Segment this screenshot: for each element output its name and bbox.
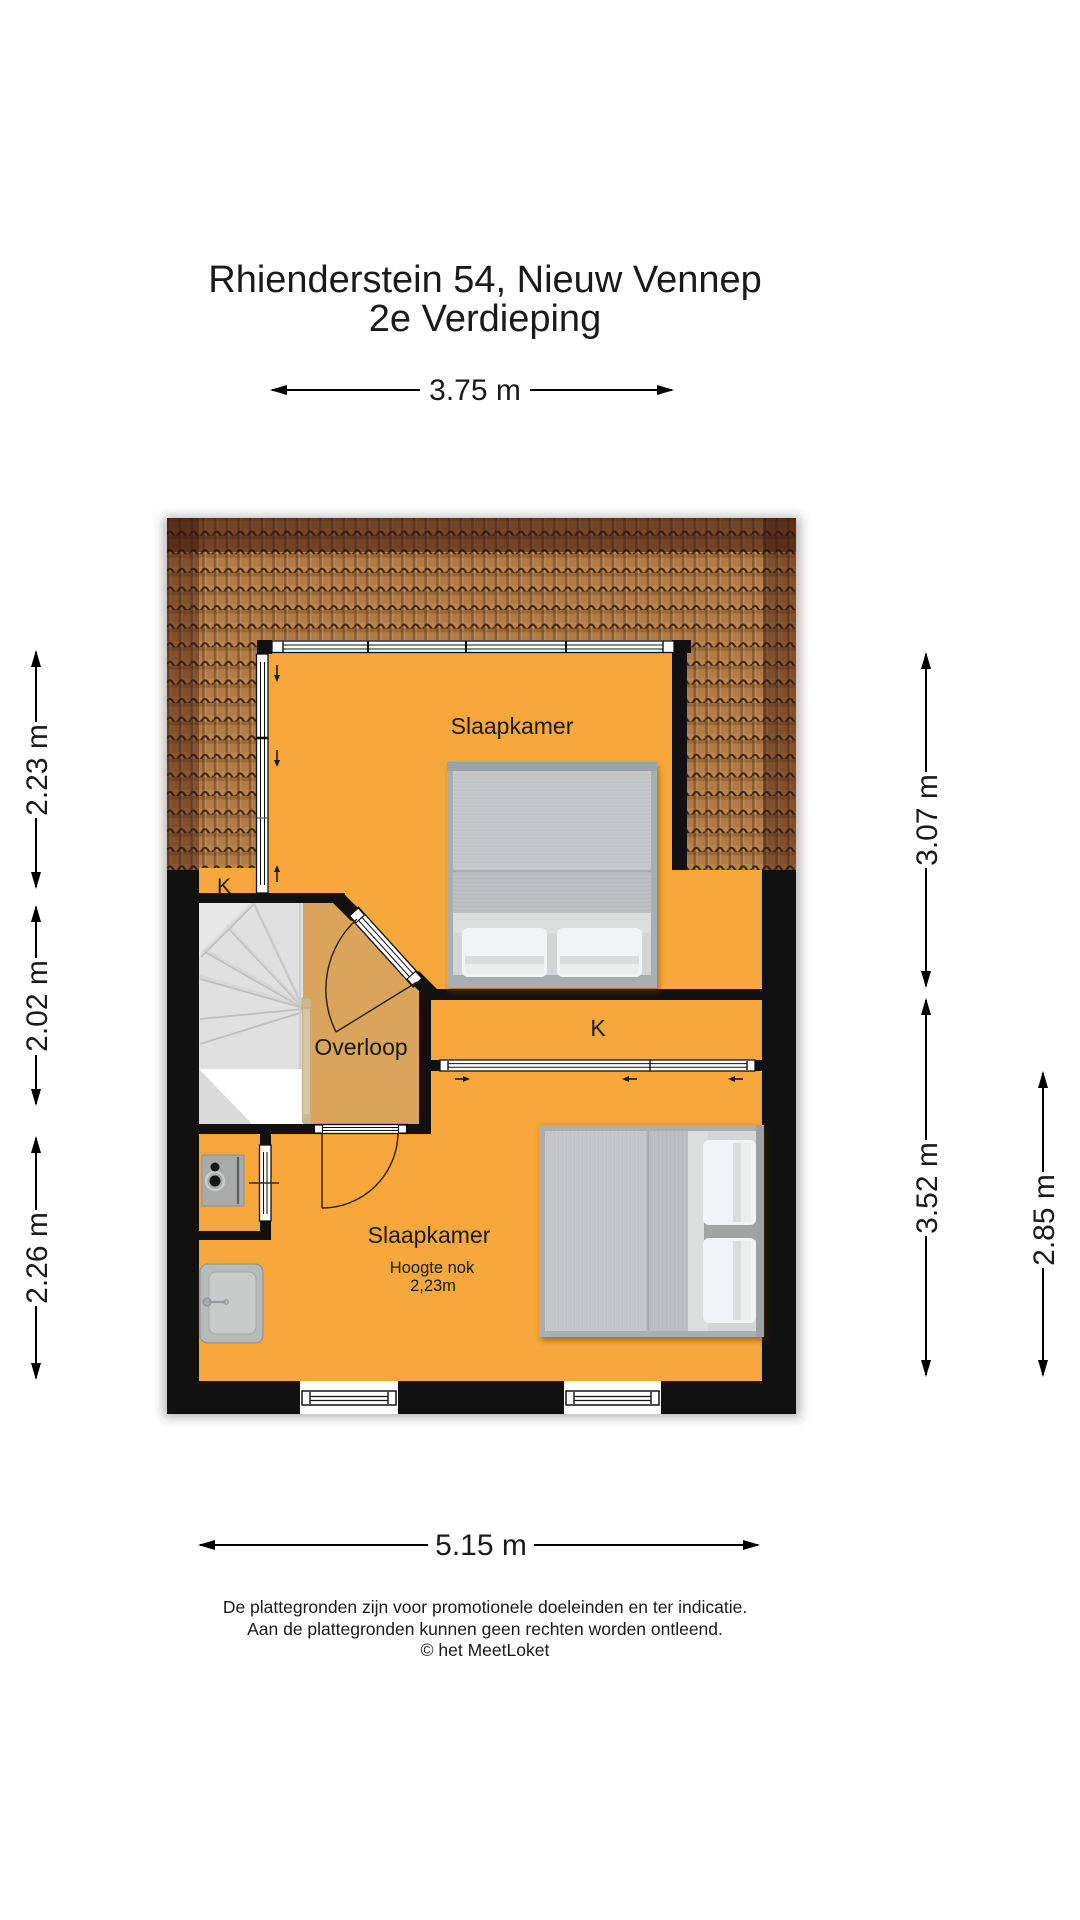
svg-text:3.75 m: 3.75 m	[429, 374, 521, 407]
svg-text:3.52 m: 3.52 m	[911, 1142, 944, 1234]
svg-text:Slaapkamer: Slaapkamer	[368, 1222, 491, 1248]
svg-text:De plattegronden zijn voor pro: De plattegronden zijn voor promotionele …	[223, 1597, 747, 1617]
svg-text:Rhienderstein 54, Nieuw Vennep: Rhienderstein 54, Nieuw Vennep	[208, 259, 762, 301]
svg-text:K: K	[217, 875, 231, 898]
svg-text:© het MeetLoket: © het MeetLoket	[421, 1640, 550, 1660]
svg-text:Aan de plattegronden kunnen ge: Aan de plattegronden kunnen geen rechten…	[247, 1619, 723, 1639]
svg-text:3.07 m: 3.07 m	[911, 774, 944, 866]
svg-text:2e Verdieping: 2e Verdieping	[369, 298, 601, 340]
svg-text:2.23 m: 2.23 m	[21, 724, 54, 816]
svg-text:K: K	[590, 1015, 606, 1041]
svg-text:Slaapkamer: Slaapkamer	[451, 713, 574, 739]
svg-text:2,23m: 2,23m	[410, 1277, 456, 1295]
svg-text:Hoogte nok: Hoogte nok	[390, 1259, 475, 1277]
svg-text:5.15 m: 5.15 m	[435, 1529, 527, 1562]
svg-text:2.26 m: 2.26 m	[21, 1212, 54, 1304]
svg-text:2.02 m: 2.02 m	[21, 960, 54, 1052]
svg-text:Overloop: Overloop	[314, 1034, 407, 1060]
svg-text:2.85 m: 2.85 m	[1028, 1174, 1061, 1266]
